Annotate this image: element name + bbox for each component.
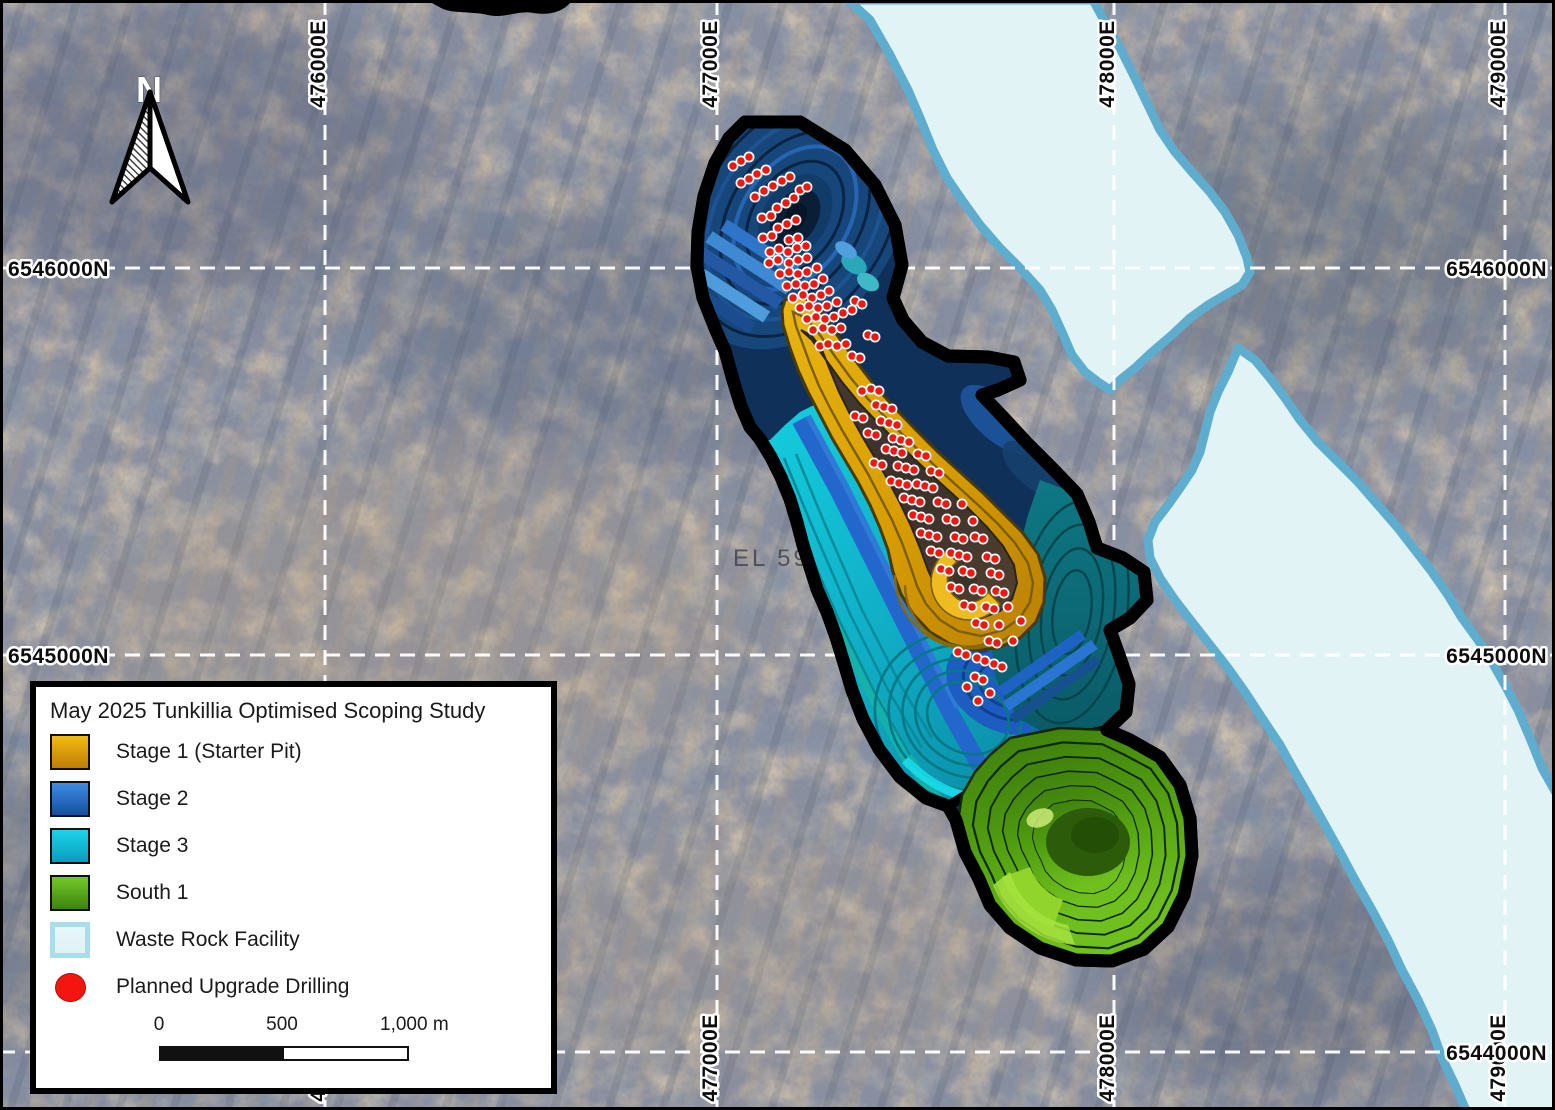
drill-point [915,497,924,506]
drill-point [997,662,1006,671]
northing-label-right: 6544000N [1446,1042,1547,1065]
drill-point [957,499,966,508]
easting-label-top: 477000E [699,20,722,108]
drill-point [832,297,841,306]
drill-point [808,325,817,334]
drill-point [874,386,883,395]
drill-point [962,552,971,561]
drill-point [782,219,791,228]
drill-point [802,267,811,276]
drill-point [824,286,833,295]
drill-point [909,465,918,474]
drill-point [773,255,782,264]
drill-point [802,314,811,323]
legend-swatch-waste-rock-facility [50,922,90,958]
drill-point [934,468,943,477]
drill-point [855,353,864,362]
drill-point [978,675,987,684]
drill-point [954,584,963,593]
drill-point [847,305,856,314]
drill-point [766,211,775,220]
drill-point [757,213,766,222]
drill-point [832,341,841,350]
drill-point [818,323,827,332]
scalebar-track [159,1046,409,1061]
drill-point [932,532,941,541]
drill-point [897,448,906,457]
drill-point [812,263,821,272]
drill-point [783,247,792,256]
drill-point [788,293,797,302]
drill-point [962,682,971,691]
drill-point [822,301,831,310]
drill-point [941,499,950,508]
northing-label-left: 6546000N [8,258,109,281]
drill-point [791,215,800,224]
legend-swatch-planned-upgrade-drilling [55,973,86,1002]
drill-point [858,413,867,422]
drill-point [944,566,953,575]
northing-label-right: 6545000N [1446,645,1547,668]
drill-point [793,233,802,242]
drill-point [934,548,943,557]
drill-point [921,451,930,460]
drill-point [761,165,770,174]
drill-point [904,437,913,446]
drill-point [784,258,793,267]
drill-point [791,279,800,288]
drill-point [838,308,847,317]
drill-point [768,181,777,190]
legend-item-planned-upgrade-drilling: Planned Upgrade Drilling [50,967,349,1007]
drill-point [809,279,818,288]
drill-point [902,480,911,489]
drill-point [802,182,811,191]
legend-item-stage-1: Stage 1 (Starter Pit) [50,732,302,772]
legend-label-stage-1: Stage 1 (Starter Pit) [116,740,302,764]
drill-point [802,253,811,262]
drill-point [950,516,959,525]
drill-point [841,339,850,348]
drill-point [924,514,933,523]
drill-point [818,274,827,283]
drill-point [877,460,886,469]
easting-label-top: 476000E [307,20,330,108]
drill-point [767,231,776,240]
drill-point [782,281,791,290]
drill-point [990,554,999,563]
drill-point [978,534,987,543]
drill-point [793,255,802,264]
easting-label-bottom: 478000E [1096,1014,1119,1102]
drill-point [973,696,982,705]
drill-point [857,386,866,395]
legend-swatch-stage-2 [50,781,90,817]
drill-point [775,269,784,278]
drill-point [773,223,782,232]
drill-point [979,620,988,629]
drill-point [798,290,807,299]
legend-label-south-1: South 1 [116,881,188,905]
drill-point [793,269,802,278]
drill-point [999,588,1008,597]
drill-point [994,570,1003,579]
drill-point [800,281,809,290]
drill-point [967,602,976,611]
drill-point [980,656,989,665]
drill-point [764,258,773,267]
legend-item-stage-3: Stage 3 [50,826,188,866]
scalebar-end-label: 1,000 m [380,1014,449,1036]
scalebar-tick-0: 0 [154,1014,165,1036]
legend-label-planned-upgrade-drilling: Planned Upgrade Drilling [116,975,349,999]
legend-item-south-1: South 1 [50,873,188,913]
drill-point [829,312,838,321]
drill-point [785,172,794,181]
northing-label-right: 6546000N [1446,258,1547,281]
legend-panel: May 2025 Tunkillia Optimised Scoping Stu… [30,681,557,1094]
scalebar: 0 500 1,000 m [36,1014,551,1084]
legend-item-waste-rock-facility: Waste Rock Facility [50,920,300,960]
drill-point [994,620,1003,629]
drill-point [887,404,896,413]
drill-point [774,244,783,253]
drill-point [870,332,879,341]
easting-label-bottom: 477000E [699,1014,722,1102]
drill-point [759,186,768,195]
legend-title: May 2025 Tunkillia Optimised Scoping Stu… [50,698,551,724]
drill-point [750,192,759,201]
drill-point [784,267,793,276]
drill-point [968,516,977,525]
drill-point [823,339,832,348]
drill-point [784,235,793,244]
drill-point [958,534,967,543]
drill-point [1003,602,1012,611]
drill-point [752,169,761,178]
drill-point [871,430,880,439]
drill-point [966,568,975,577]
drill-point [792,243,801,252]
easting-label-top: 478000E [1096,20,1119,108]
drill-point [928,483,937,492]
drill-point [857,299,866,308]
legend-label-stage-3: Stage 3 [116,834,188,858]
drill-point [836,323,845,332]
drill-point [765,247,774,256]
drill-point [892,420,901,429]
legend-swatch-stage-1 [50,734,90,770]
drill-point [820,314,829,323]
drill-point [813,303,822,312]
drill-point [961,650,970,659]
drill-point [795,303,804,312]
legend-swatch-south-1 [50,875,90,911]
drill-point [985,688,994,697]
scalebar-black-segment [161,1048,284,1059]
legend-label-waste-rock-facility: Waste Rock Facility [116,928,300,952]
drill-point [1016,616,1025,625]
drill-point [992,638,1001,647]
legend-swatch-stage-3 [50,828,90,864]
scalebar-tick-500: 500 [266,1014,298,1036]
northing-label-left: 6545000N [8,645,109,668]
easting-label-top: 479000E [1487,20,1510,108]
map-canvas[interactable]: EL 590 [0,0,1555,1110]
drill-point [758,233,767,242]
drill-point [827,325,836,334]
legend-item-stage-2: Stage 2 [50,779,188,819]
drill-point [977,586,986,595]
drill-point [804,301,813,310]
drill-point [989,604,998,613]
legend-label-stage-2: Stage 2 [116,787,188,811]
drill-point [801,241,810,250]
drill-point [744,152,753,161]
drill-point [1008,636,1017,645]
drill-point [811,312,820,321]
drill-point [772,203,781,212]
drill-point [789,193,798,202]
